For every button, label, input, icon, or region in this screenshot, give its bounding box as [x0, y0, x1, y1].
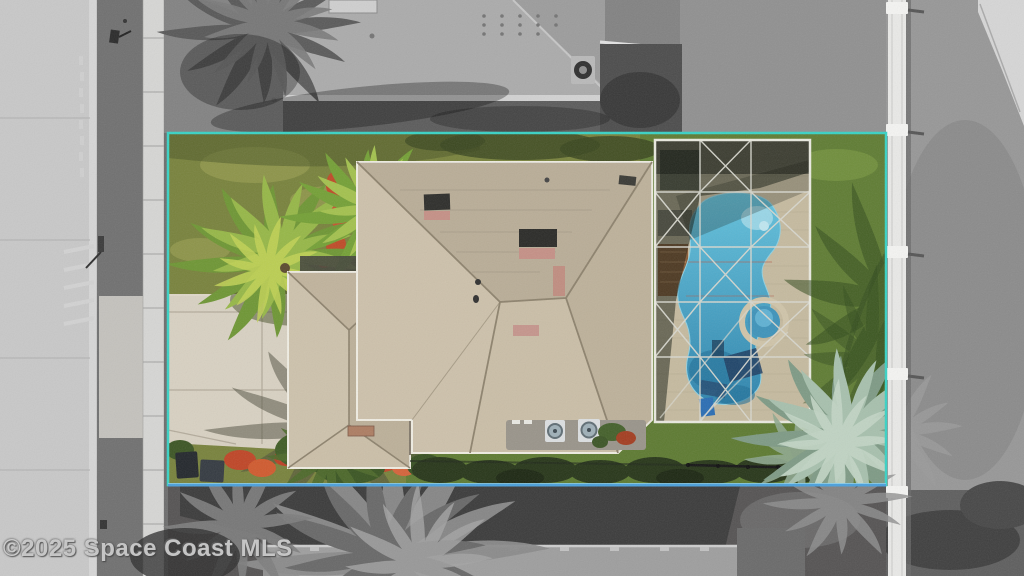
aerial-photo: ©2025 Space Coast MLS [0, 0, 1024, 576]
grain-overlay [0, 0, 1024, 576]
aerial-photo-canvas [0, 0, 1024, 576]
mls-watermark: ©2025 Space Coast MLS [3, 535, 293, 563]
